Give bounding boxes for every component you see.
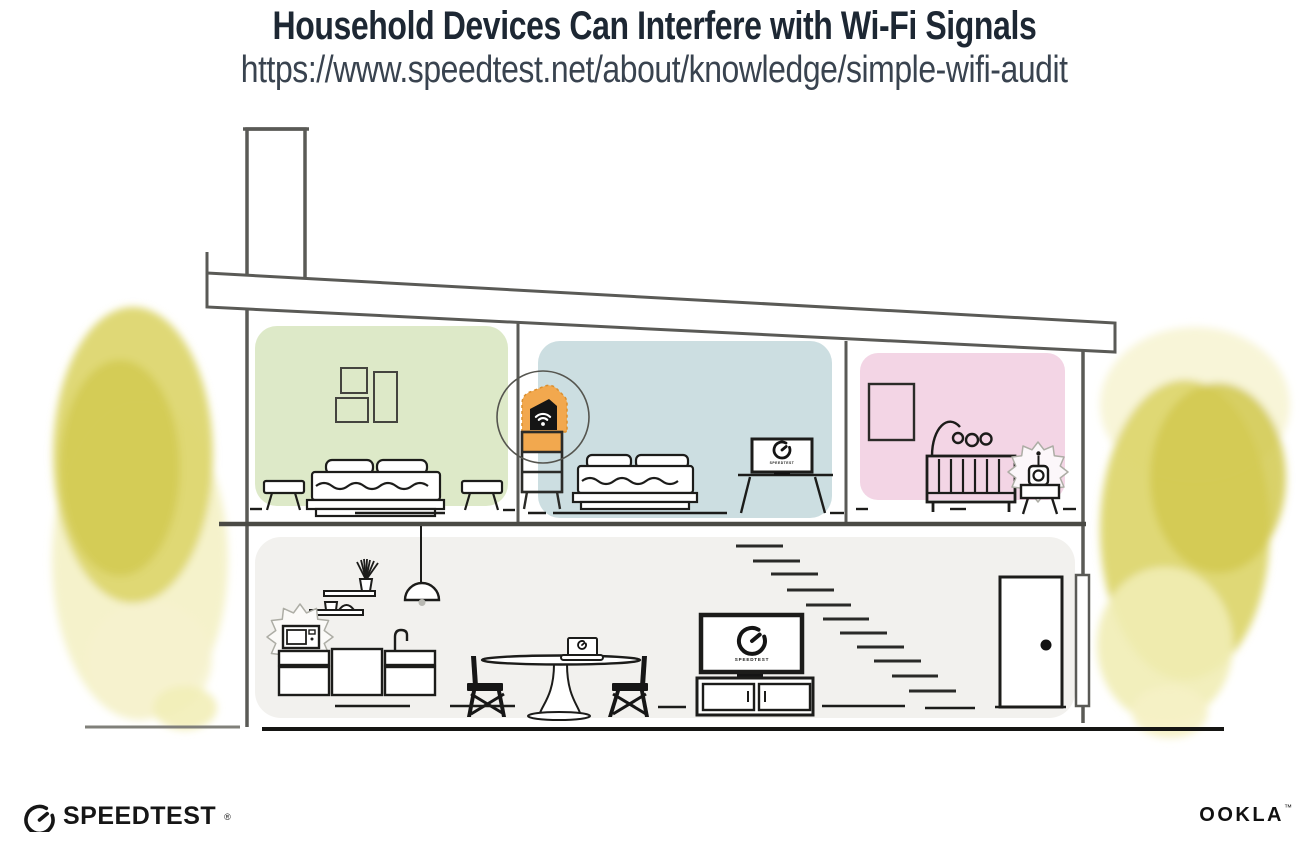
media-console — [697, 678, 813, 715]
door — [995, 577, 1066, 707]
ookla-wordmark: OOKLA — [1199, 804, 1284, 826]
tv-screen-label: SPEEDTEST — [735, 657, 770, 662]
bed — [573, 455, 697, 509]
tv: SPEEDTEST — [701, 615, 802, 678]
downspout — [1076, 575, 1089, 706]
speedtest-trademark: ® — [224, 813, 231, 822]
monitor-screen-label: SPEEDTEST — [770, 461, 795, 465]
speedtest-wordmark: SPEEDTEST — [63, 802, 216, 831]
left-tree — [52, 307, 228, 730]
ookla-logo: OOKLA™ — [1199, 804, 1292, 827]
laptop — [561, 638, 603, 660]
bedroom-monitor: SPEEDTEST — [752, 439, 812, 475]
speedtest-logo: SPEEDTEST® — [24, 801, 231, 832]
speedometer-icon — [24, 801, 55, 832]
door-knob — [1041, 640, 1052, 651]
house-illustration: SPEEDTEST — [0, 0, 1308, 861]
ookla-trademark: ™ — [1284, 803, 1292, 812]
chimney — [243, 129, 309, 282]
microwave-icon — [283, 626, 319, 648]
right-tree — [1097, 327, 1290, 738]
